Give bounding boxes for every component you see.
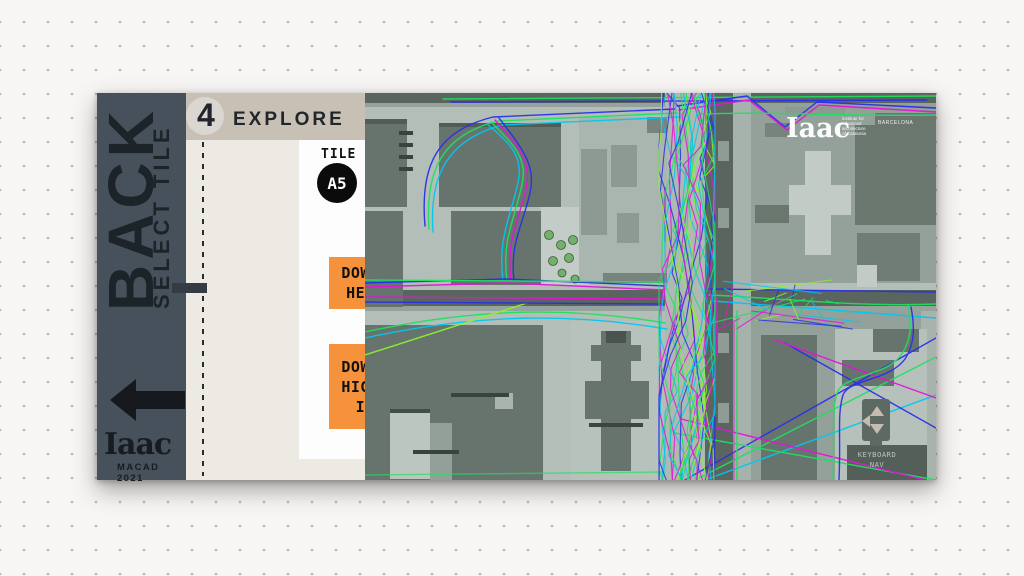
map-viewport[interactable]: Iaac institute for advanced architecture… [365,93,936,480]
svg-text:of Catalonia: of Catalonia [842,131,867,136]
svg-text:BARCELONA: BARCELONA [878,120,914,126]
tile-label: TILE [321,147,356,162]
app-window: BACK SELECT TILE Iaac MACAD 2021 4 EXPLO… [97,93,936,480]
iaac-logo-subtitle: MACAD 2021 [117,462,186,484]
svg-text:Iaac: Iaac [786,113,850,144]
step-number: 4 [197,97,215,134]
iaac-logo: Iaac [104,427,171,462]
back-arrow-icon[interactable] [110,377,185,423]
explore-panel: 4 EXPLORE TILE A5 PEDESTRIANS IN SCENE D… [186,93,365,480]
svg-text:KEYBOARD: KEYBOARD [858,450,897,459]
step-header: 4 EXPLORE [186,93,365,140]
tile-badge: A5 [317,163,357,203]
select-tile-label: SELECT TILE [149,95,175,309]
scroll-indicator [172,283,207,293]
desktop-background: BACK SELECT TILE Iaac MACAD 2021 4 EXPLO… [0,0,1024,576]
page-title: EXPLORE [233,109,345,131]
divider-dashed [202,142,204,476]
svg-text:NAV: NAV [870,460,885,469]
